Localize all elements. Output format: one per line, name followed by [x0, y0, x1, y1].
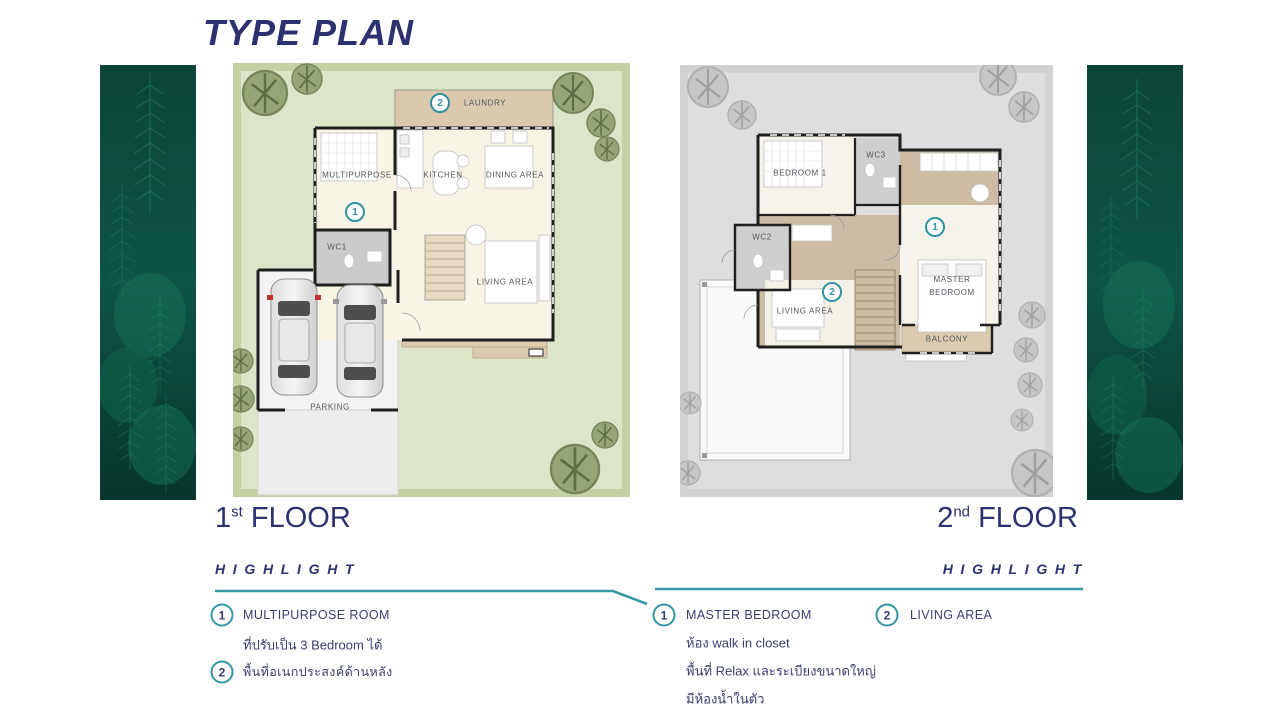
highlight-2-marker-2: 2 — [876, 604, 899, 627]
highlight-2-item-2-title: LIVING AREA — [910, 608, 992, 622]
brochure-page: TYPE PLAN — [0, 0, 1280, 720]
highlight-1-item-2-title: พื้นที่อเนกประสงค์ด้านหลัง — [243, 662, 393, 682]
highlight-2-item-1-line-1: ห้อง walk in closet — [686, 633, 790, 654]
highlight-1-marker-1: 1 — [211, 604, 234, 627]
highlight-2-marker-1: 1 — [653, 604, 676, 627]
highlight-2-item-1-title: MASTER BEDROOM — [686, 608, 812, 622]
highlight-2-item-1-line-2: พื้นที่ Relax และระเบียงขนาดใหญ่ — [686, 661, 876, 682]
highlight-1-marker-2: 2 — [211, 661, 234, 684]
highlight-1-item-1-title: MULTIPURPOSE ROOM — [243, 608, 390, 622]
highlight-1-item-1-line-1: ที่ปรับเป็น 3 Bedroom ได้ — [243, 635, 382, 656]
highlight-divider-lines — [0, 0, 1280, 720]
highlight-2-item-1-line-3: มีห้องน้ำในตัว — [686, 689, 764, 710]
